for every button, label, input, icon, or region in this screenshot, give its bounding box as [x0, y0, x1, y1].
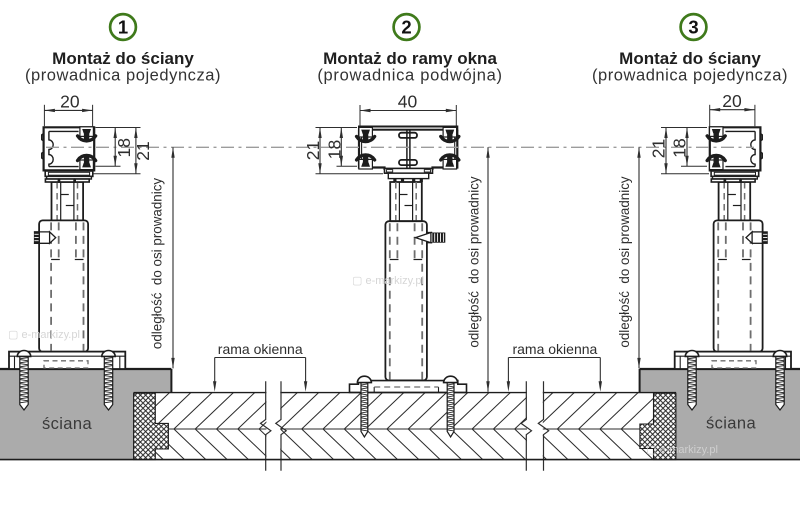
svg-text:Montaż do ściany: Montaż do ściany [619, 49, 761, 68]
svg-text:21: 21 [303, 141, 323, 160]
svg-text:21: 21 [649, 139, 669, 158]
svg-text:18: 18 [669, 138, 689, 157]
svg-text:40: 40 [398, 92, 418, 112]
svg-text:20: 20 [722, 91, 742, 111]
svg-text:Montaż do ściany: Montaż do ściany [52, 49, 194, 68]
svg-text:odległość do osi prowadnicy: odległość do osi prowadnicy [617, 176, 632, 348]
svg-text:ściana: ściana [706, 415, 757, 433]
svg-text:▢ e-markizy.pl: ▢ e-markizy.pl [352, 275, 424, 287]
svg-text:odległość do osi prowadnicy: odległość do osi prowadnicy [150, 178, 165, 350]
svg-text:odległość do osi prowadnicy: odległość do osi prowadnicy [467, 176, 482, 348]
svg-text:▢ e-markizy.pl: ▢ e-markizy.pl [8, 329, 80, 341]
svg-text:▢ e-markizy.pl: ▢ e-markizy.pl [646, 444, 718, 456]
svg-text:18: 18 [114, 138, 134, 157]
svg-text:(prowadnica pojedyncza): (prowadnica pojedyncza) [592, 67, 788, 85]
svg-text:rama okienna: rama okienna [512, 341, 597, 357]
svg-text:(prowadnica podwójna): (prowadnica podwójna) [317, 67, 502, 85]
svg-text:20: 20 [60, 92, 80, 112]
svg-text:Montaż do ramy okna: Montaż do ramy okna [323, 49, 497, 68]
svg-text:(prowadnica pojedyncza): (prowadnica pojedyncza) [25, 67, 221, 85]
svg-text:1: 1 [118, 17, 128, 38]
svg-text:3: 3 [688, 17, 698, 38]
svg-text:ściana: ściana [42, 415, 93, 433]
svg-text:rama okienna: rama okienna [218, 341, 303, 357]
svg-text:2: 2 [401, 17, 411, 38]
svg-text:21: 21 [133, 141, 153, 160]
svg-text:18: 18 [324, 140, 344, 159]
